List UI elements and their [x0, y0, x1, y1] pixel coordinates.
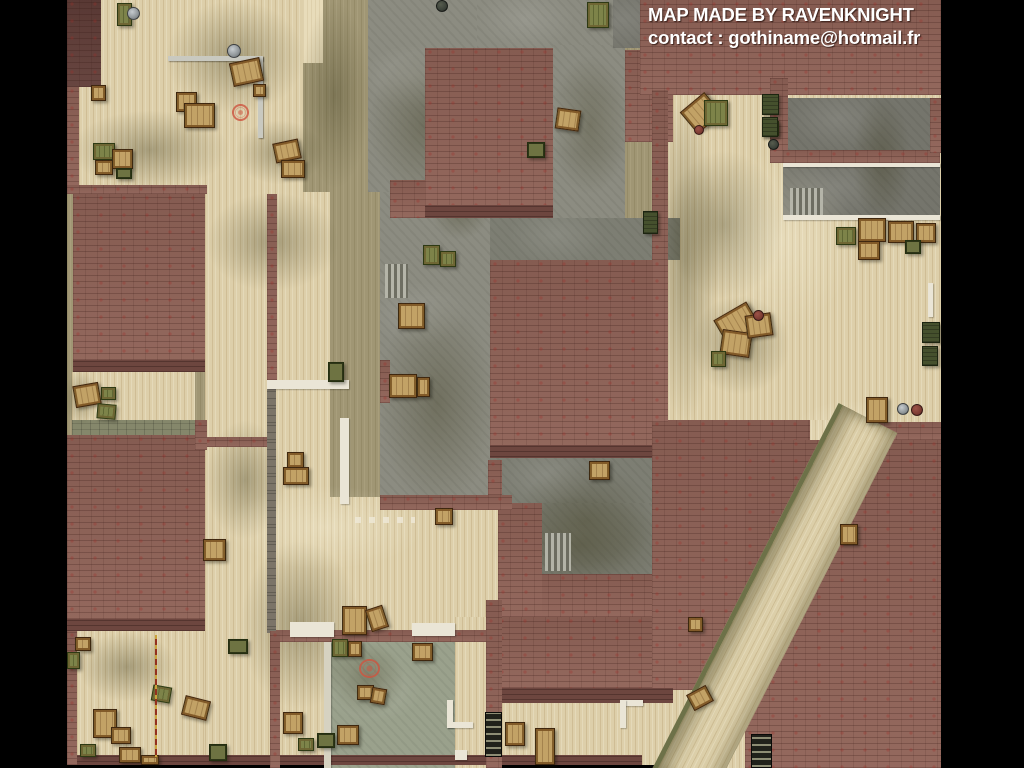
crate [342, 606, 367, 635]
crate [762, 94, 779, 115]
crate [762, 117, 778, 137]
crate [858, 241, 880, 260]
crate [283, 467, 309, 485]
stairs [790, 188, 823, 215]
crate [337, 725, 359, 745]
white-wall [783, 163, 940, 167]
brick-roof-structure [652, 90, 668, 422]
crate [151, 684, 172, 703]
crate [398, 303, 425, 329]
crate [328, 362, 344, 382]
crate [287, 452, 304, 468]
crate [417, 377, 430, 397]
debris-marks [355, 517, 415, 523]
light-patch [705, 150, 855, 330]
crate [643, 211, 658, 234]
crate [298, 738, 314, 751]
credits-line-1: MAP MADE BY RAVENKNIGHT [648, 3, 920, 26]
shadow-patch [378, 295, 496, 510]
crate [535, 728, 555, 765]
barrel [436, 0, 448, 12]
brick-roof-structure [203, 437, 267, 447]
crate [704, 100, 728, 126]
white-wall [340, 418, 349, 504]
stairs [385, 264, 408, 298]
credits-line-2: contact : gothiname@hotmail.fr [648, 26, 920, 49]
ladder [751, 734, 772, 768]
concrete-region [613, 0, 641, 48]
crate [412, 643, 433, 661]
white-wall [928, 283, 933, 317]
crate [905, 240, 921, 254]
crate [866, 397, 888, 423]
crate [423, 245, 440, 265]
crate [184, 103, 215, 128]
crate [95, 160, 113, 175]
brick-roof-structure [195, 420, 207, 450]
ladder [485, 712, 502, 757]
objective-marker-icon [232, 104, 249, 121]
barrel [897, 403, 909, 415]
crate [711, 351, 726, 367]
crate [922, 346, 938, 366]
brick-roof-structure [930, 98, 941, 153]
white-wall [455, 750, 467, 760]
brick-roof-structure [67, 435, 205, 631]
crate [435, 508, 453, 525]
brick-roof-structure [497, 617, 652, 688]
crate [555, 107, 582, 131]
crate [228, 639, 248, 654]
crate [75, 637, 91, 651]
crate [332, 639, 348, 657]
game-map-overview: MAP MADE BY RAVENKNIGHT contact : gothin… [0, 0, 1024, 768]
stairs [545, 533, 571, 571]
barrel [694, 125, 704, 135]
crate [440, 251, 456, 267]
brick-roof-structure [73, 360, 205, 372]
barrel [227, 44, 241, 58]
crate [253, 84, 266, 97]
brick-roof-structure [67, 87, 79, 188]
crate [370, 687, 388, 705]
crate [587, 2, 609, 28]
brick-roof-structure [270, 631, 280, 768]
crate [116, 168, 132, 179]
white-wall [290, 622, 334, 637]
crate [203, 539, 226, 561]
brick-roof-structure [497, 688, 673, 703]
crate [91, 85, 106, 101]
crate [119, 747, 141, 763]
crate [283, 712, 303, 734]
brick-roof-structure [67, 185, 207, 194]
hazard-line [155, 635, 157, 757]
brick-roof-structure [67, 0, 101, 87]
white-wall [447, 722, 473, 728]
crate [80, 744, 96, 757]
brick-roof-structure [425, 205, 553, 218]
map-canvas [0, 0, 1024, 768]
crate [209, 744, 227, 761]
crate [505, 722, 525, 746]
crate [589, 461, 610, 480]
map-credits: MAP MADE BY RAVENKNIGHT contact : gothin… [648, 3, 920, 49]
crate [67, 652, 80, 669]
crate [111, 727, 131, 744]
white-wall [412, 623, 455, 636]
crate [527, 142, 545, 158]
brick-roof-structure [425, 48, 553, 218]
white-wall [324, 642, 331, 768]
white-wall [620, 700, 626, 728]
crate [389, 374, 417, 398]
crate [858, 218, 886, 242]
brick-roof-structure [390, 180, 425, 218]
brick-roof-structure [267, 194, 277, 380]
brick-roof-structure [267, 389, 276, 633]
shadow-patch [300, 0, 370, 190]
brick-roof-structure [498, 503, 542, 617]
barrel [911, 404, 923, 416]
objective-marker-icon [359, 659, 380, 678]
crate [922, 322, 940, 343]
crate [688, 617, 703, 632]
crate [112, 149, 133, 169]
crate [836, 227, 856, 245]
brick-roof-structure [73, 194, 205, 372]
crate [101, 387, 116, 400]
barrel [753, 310, 764, 321]
brick-roof-structure [67, 619, 205, 631]
crate [96, 403, 116, 420]
barrel [768, 139, 779, 150]
crate [281, 160, 305, 178]
crate [840, 524, 858, 545]
barrel [127, 7, 140, 20]
brick-roof-structure [783, 150, 940, 163]
brick-roof-structure [490, 260, 657, 458]
brick-roof-structure [490, 445, 657, 458]
crate [317, 733, 335, 748]
crate [348, 641, 362, 657]
